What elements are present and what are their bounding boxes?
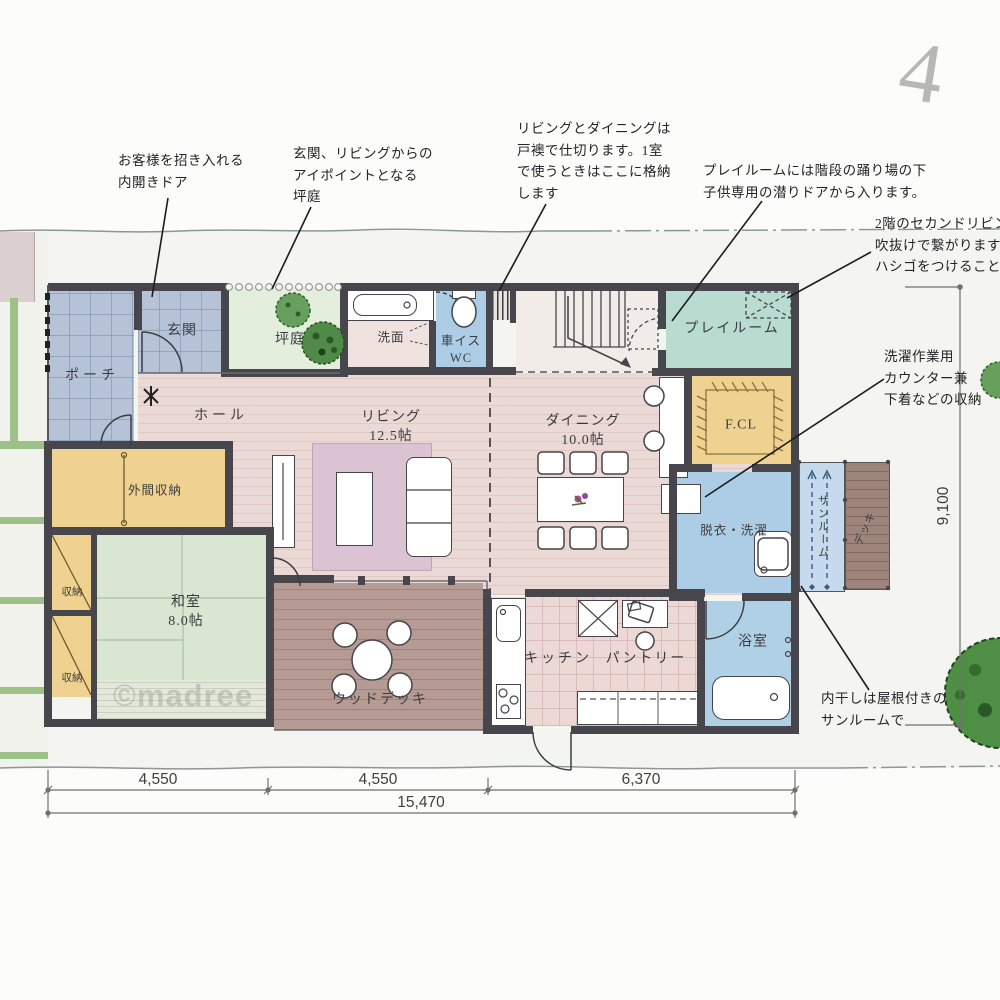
annotation-second-living: 2階のセカンドリビン 吹抜けで繋がります。 ハシゴをつけることも <box>875 213 1000 278</box>
label-tsuboniwa: 坪庭 <box>275 332 305 351</box>
label-storage-a: 収納 <box>62 586 83 600</box>
storage-marks <box>52 453 127 696</box>
sunroom-arrows <box>797 460 890 592</box>
annotation-entry-door: お客様を招き入れる 内開きドア <box>118 150 244 193</box>
label-fcl: F.CL <box>725 417 757 436</box>
dim-width-mid: 4,550 <box>359 771 398 788</box>
watermark: ©madree <box>113 678 253 714</box>
site-trees <box>945 362 1000 748</box>
flower-icon <box>572 493 588 505</box>
dim-width-total: 15,470 <box>397 794 445 811</box>
plant-icon <box>144 386 158 406</box>
dim-width-left: 4,550 <box>139 771 178 788</box>
annotation-indoor-drying: 内干しは屋根付きの サンルームで <box>821 688 947 731</box>
label-playroom: プレイルーム <box>684 321 780 340</box>
label-sunroom: サンルーム <box>815 495 830 560</box>
annotation-partition: リビングとダイニングは 戸襖で仕切ります。1室 で使うときはここに格納 します <box>517 118 671 204</box>
label-genkan: 玄関 <box>167 323 197 342</box>
floor-plan: 4,550 4,550 6,370 15,470 9,100 ポーチ 玄関 坪庭… <box>0 0 1000 1000</box>
label-washitsu: 和室 8.0帖 <box>168 594 204 632</box>
playroom-hatch-box <box>746 292 791 318</box>
courtyard-bushes <box>276 293 344 364</box>
label-porch: ポーチ <box>65 368 119 387</box>
label-living: リビング 12.5帖 <box>361 409 421 447</box>
annotation-playroom-door: プレイルームには階段の踊り場の下 子供専用の潜りドアから入ります。 <box>703 160 927 203</box>
dim-depth: 9,100 <box>935 486 952 525</box>
porch-edge <box>45 285 50 443</box>
stairs <box>553 291 662 368</box>
label-kitchen: キッチン <box>524 651 592 670</box>
round-furniture <box>332 297 788 698</box>
step-lines <box>138 373 487 730</box>
label-wc: 車イス WC <box>441 333 481 367</box>
label-pantry: パントリー <box>606 651 687 670</box>
pebble-edge <box>226 284 342 291</box>
annotation-laundry-counter: 洗濯作業用 カウンター兼 下着などの収納 <box>884 346 982 411</box>
label-dining: ダイニング 10.0帖 <box>546 413 621 451</box>
label-wood-deck: ウッドデッキ <box>332 692 428 711</box>
label-senmen: 洗面 <box>377 330 404 347</box>
label-datsui: 脱衣・洗濯 <box>700 523 768 540</box>
label-storage-b: 収納 <box>62 672 83 686</box>
label-hall: ホール <box>194 408 248 427</box>
label-doma-storage: 外間収納 <box>128 483 182 500</box>
dim-width-right: 6,370 <box>622 771 661 788</box>
label-bath: 浴室 <box>738 634 768 653</box>
annotation-courtyard: 玄関、リビングからの アイポイントとなる 坪庭 <box>293 143 433 208</box>
